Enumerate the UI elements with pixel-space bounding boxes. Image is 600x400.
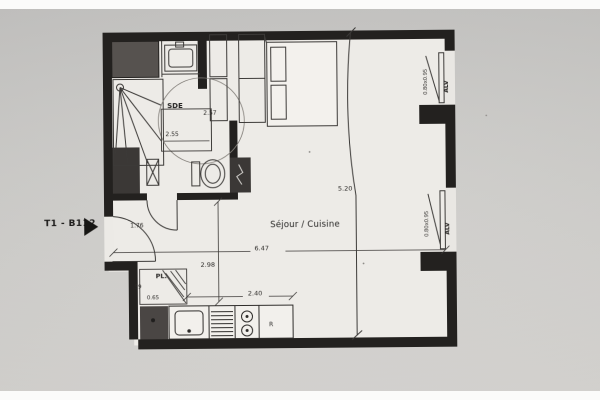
window-size-note-1: 0.80x0.95: [423, 55, 429, 95]
dim-sde-width: 2.55: [165, 132, 178, 138]
bed-icon: [267, 42, 338, 127]
fridge-label: R: [269, 322, 273, 328]
window-label-alv-1: ALV: [443, 61, 450, 93]
dim-closet-depth: .59: [133, 285, 142, 291]
dim-closet-width: 0.65: [147, 296, 159, 302]
dim-kitchen-length: 2.40: [246, 290, 265, 297]
window-label-alv-2: ALV: [444, 203, 451, 235]
kitchen-counter: [169, 305, 293, 339]
room-label-sde: SDE: [167, 103, 183, 110]
entrance-arrow-icon: [84, 218, 98, 236]
window-size-note-2: 0.80x0.95: [424, 197, 430, 237]
screenshot-root: T1 - B112 SDE Séjour / Cuisine PL. R 2.5…: [0, 0, 600, 400]
floor-plan: T1 - B112 SDE Séjour / Cuisine PL. R 2.5…: [0, 0, 600, 400]
closet-label: PL.: [156, 273, 167, 280]
dim-entry-door: 1.76: [130, 223, 143, 229]
dim-living-height: 5.20: [338, 186, 353, 193]
dim-living-width: 6.47: [252, 245, 271, 252]
dim-sde-height: 2.57: [203, 111, 216, 117]
plan-linework: [0, 0, 600, 400]
dim-entry-height: 2.98: [201, 262, 216, 269]
room-label-sejour-cuisine: Séjour / Cuisine: [270, 221, 340, 230]
